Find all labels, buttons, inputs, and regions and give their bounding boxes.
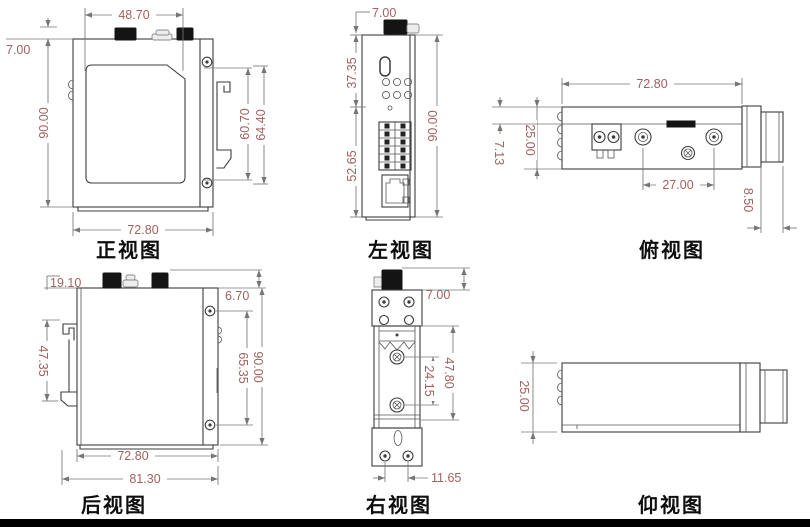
caption-back-view: 后视图 bbox=[81, 494, 147, 517]
dim-label-back-clip-offset: 19.10 bbox=[50, 276, 81, 290]
top-left-bumps bbox=[558, 112, 563, 160]
din-rail-channel bbox=[374, 326, 420, 428]
dim-label-left-lower-section: 52.65 bbox=[345, 150, 359, 181]
dim-label-back-antenna-height: 6.70 bbox=[225, 289, 249, 303]
front-label-plate bbox=[86, 65, 185, 183]
sim-card-slot bbox=[667, 121, 695, 127]
front-view: 48.70 7.00 90.00 60.70 bbox=[6, 8, 268, 262]
din-rail-extension bbox=[742, 106, 783, 167]
back-view: 19.10 47.35 6.70 65.35 bbox=[36, 270, 268, 517]
terminal-block bbox=[379, 122, 411, 170]
panel-screw bbox=[205, 306, 215, 430]
dim-back-screw-pitch: 65.35 bbox=[216, 311, 253, 425]
center-connector bbox=[374, 277, 382, 287]
top-view: 72.80 25.00 7.13 2 bbox=[492, 77, 797, 262]
din-rail-clip bbox=[61, 324, 77, 406]
center-connector bbox=[123, 275, 138, 287]
center-connector bbox=[152, 30, 172, 40]
dim-top-rail-depth: 8.50 bbox=[741, 166, 797, 233]
front-left-bumps bbox=[69, 80, 73, 100]
led-indicators bbox=[382, 78, 411, 98]
dim-label-front-antenna-height: 7.00 bbox=[6, 43, 30, 57]
antenna-jack bbox=[635, 129, 722, 145]
dim-label-right-clip-window: 47.80 bbox=[442, 357, 456, 388]
dim-back-clip-offset: 19.10 bbox=[44, 276, 81, 290]
dim-front-clip-outer: 64.40 bbox=[253, 66, 268, 184]
case-screw bbox=[682, 147, 695, 160]
panel-screw bbox=[202, 57, 212, 188]
dim-label-right-foot-screw-pitch: 11.65 bbox=[431, 471, 461, 485]
caption-bottom-view: 仰视图 bbox=[638, 493, 704, 517]
antenna-connector bbox=[115, 28, 136, 40]
clip-screw bbox=[390, 350, 404, 412]
front-body-outline bbox=[73, 39, 213, 207]
mount-slot bbox=[394, 431, 402, 446]
dim-label-top-antenna-pitch: 27.00 bbox=[662, 178, 693, 192]
center-connector bbox=[407, 24, 419, 33]
dim-label-back-screw-pitch: 65.35 bbox=[236, 352, 250, 383]
dim-left-lower-section: 52.65 bbox=[345, 107, 362, 217]
dim-front-body-height: 90.00 bbox=[37, 39, 73, 207]
dim-label-back-clip-length: 47.35 bbox=[36, 345, 50, 376]
dim-back-clip-length: 47.35 bbox=[36, 320, 60, 401]
caption-right-view: 右视图 bbox=[366, 493, 432, 517]
dim-label-front-connector-span: 48.70 bbox=[118, 8, 149, 22]
dim-label-back-overall-width: 81.30 bbox=[129, 472, 160, 486]
dim-label-top-rail-depth: 8.50 bbox=[741, 188, 755, 212]
din-rail-extension bbox=[740, 363, 787, 432]
dim-label-front-clip-outer: 64.40 bbox=[254, 109, 268, 140]
dim-label-front-clip-inner: 60.70 bbox=[238, 108, 252, 139]
dim-label-left-upper-section: 37.35 bbox=[345, 57, 359, 88]
back-body-outline bbox=[77, 288, 218, 445]
bottom-view: 25.00 仰视图 bbox=[517, 351, 787, 517]
caption-top-view: 俯视图 bbox=[639, 238, 705, 262]
dim-back-body-width: 72.80 bbox=[77, 449, 218, 463]
dim-label-left-antenna-height: 7.00 bbox=[372, 6, 396, 20]
dim-label-right-screw-pitch: 24.15 bbox=[422, 365, 436, 396]
dim-label-back-body-width: 72.80 bbox=[117, 449, 148, 463]
bottom-bar bbox=[0, 519, 810, 527]
caption-left-view: 左视图 bbox=[368, 238, 434, 262]
dim-left-body-height: 90.00 bbox=[415, 35, 443, 217]
front-bottom-lip bbox=[78, 207, 208, 211]
dim-label-left-body-height: 90.00 bbox=[426, 110, 440, 141]
din-rail-clip bbox=[217, 82, 231, 168]
dim-label-top-edge-step: 7.13 bbox=[492, 141, 506, 165]
dim-label-top-body-depth: 25.00 bbox=[523, 124, 537, 155]
dim-right-screw-pitch: 24.15 bbox=[405, 357, 439, 405]
foot-screw bbox=[380, 451, 413, 461]
antenna-connector bbox=[177, 28, 193, 40]
dim-left-upper-section: 37.35 bbox=[345, 35, 366, 107]
caption-front-view: 正视图 bbox=[96, 239, 162, 262]
plate-screw bbox=[379, 297, 414, 325]
dim-label-front-body-height: 90.00 bbox=[37, 107, 51, 138]
dim-label-back-body-height: 90.00 bbox=[251, 351, 265, 382]
antenna-connector bbox=[384, 20, 407, 34]
dim-top-body-width: 72.80 bbox=[562, 77, 742, 104]
dim-right-antenna-height: 7.00 bbox=[402, 268, 470, 302]
dim-top-antenna-pitch: 27.00 bbox=[643, 148, 714, 192]
antenna-connector bbox=[382, 270, 402, 290]
dim-label-top-body-width: 72.80 bbox=[636, 77, 667, 91]
dim-label-right-antenna-height: 7.00 bbox=[426, 288, 450, 302]
drawing-canvas: 48.70 7.00 90.00 60.70 bbox=[0, 0, 810, 527]
rj45-port bbox=[382, 175, 409, 207]
bottom-left-bumps bbox=[558, 370, 563, 405]
right-view: 7.00 24.15 47.80 11.65 bbox=[366, 268, 470, 517]
right-bottom-plate bbox=[372, 428, 422, 466]
bottom-body-outline bbox=[562, 363, 740, 432]
dim-front-antenna-height: 7.00 bbox=[6, 18, 73, 57]
reset-hole bbox=[388, 106, 392, 110]
antenna-connector bbox=[103, 273, 121, 288]
dim-bottom-body-depth: 25.00 bbox=[517, 351, 557, 444]
usb-c-port bbox=[380, 57, 390, 76]
antenna-connector bbox=[152, 273, 168, 288]
power-terminal bbox=[592, 124, 621, 158]
dim-label-bottom-body-depth: 25.00 bbox=[517, 380, 531, 411]
left-view: 7.00 37.35 52.65 90.00 bbox=[345, 6, 443, 262]
clip-spring bbox=[379, 342, 415, 350]
dim-front-body-width: 72.80 bbox=[73, 212, 213, 237]
dim-label-front-body-width: 72.80 bbox=[127, 223, 158, 237]
